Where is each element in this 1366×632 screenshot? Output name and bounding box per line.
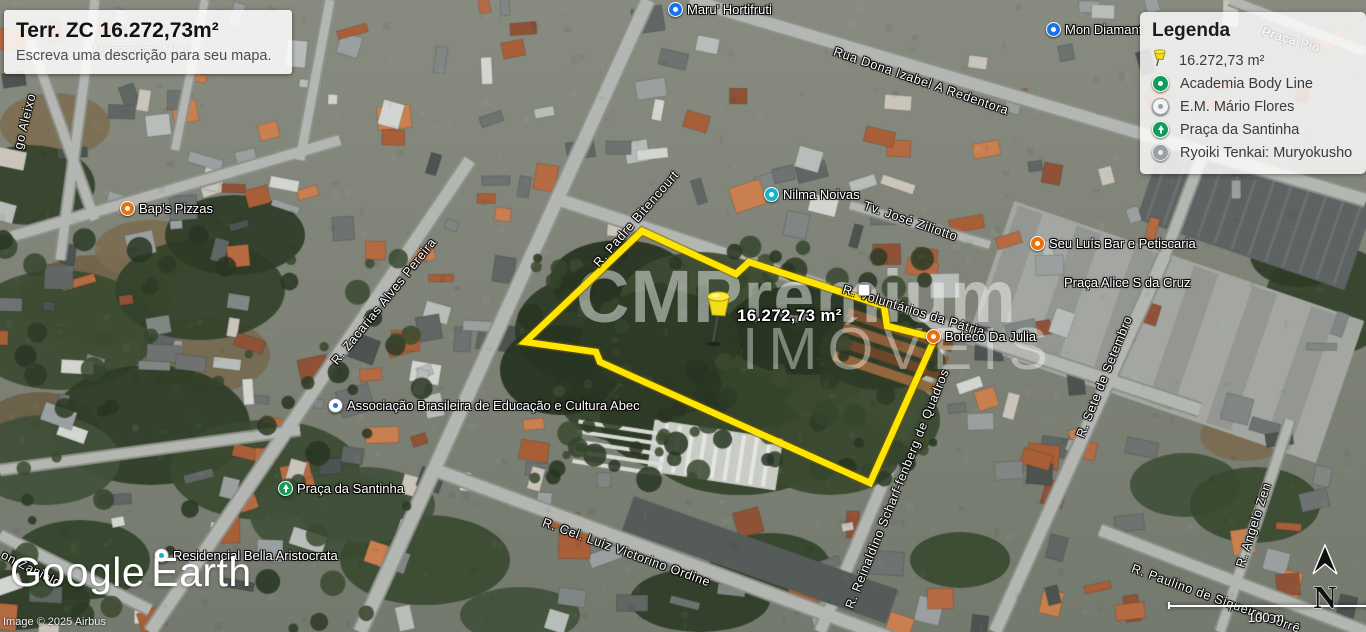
imagery-copyright: Image © 2025 Airbus — [3, 616, 106, 628]
pushpin-icon — [1152, 49, 1168, 72]
poi-green-icon — [1152, 75, 1169, 92]
legend-item-label: Ryoiki Tenkai: Muryokusho — [1180, 145, 1352, 161]
legend-items: 16.272,73 m²Academia Body LineE.M. Mário… — [1152, 49, 1356, 164]
google-earth-logo: GoogleEarth — [10, 549, 252, 596]
legend-panel: Legenda 16.272,73 m²Academia Body LineE.… — [1140, 12, 1366, 174]
map-title-box[interactable]: Terr. ZC 16.272,73m² Escreva uma descriç… — [4, 10, 292, 74]
legend-item[interactable]: 16.272,73 m² — [1152, 49, 1356, 72]
legend-item[interactable]: Academia Body Line — [1152, 72, 1356, 95]
legend-item-label: E.M. Mário Flores — [1180, 99, 1294, 115]
legend-item[interactable]: Ryoiki Tenkai: Muryokusho — [1152, 141, 1356, 164]
poi-gray-icon — [1152, 144, 1169, 161]
property-area-label: 16.272,73 m² — [737, 306, 842, 326]
legend-title: Legenda — [1152, 20, 1356, 42]
legend-item-label: Praça da Santinha — [1180, 122, 1299, 138]
legend-item[interactable]: Praça da Santinha — [1152, 118, 1356, 141]
map-description-placeholder[interactable]: Escreva uma descrição para seu mapa. — [16, 48, 280, 64]
scale-bar-label: 100 m — [1236, 610, 1296, 625]
compass-north-label: N — [1313, 579, 1336, 615]
legend-item[interactable]: E.M. Mário Flores — [1152, 95, 1356, 118]
google-earth-viewport: CMPremium IMÓVEIS Rua Dona Izabel A Rede… — [0, 0, 1366, 632]
google-logo-text: Google — [10, 549, 145, 595]
compass-north[interactable]: N — [1302, 542, 1348, 616]
poi-white-icon — [1152, 98, 1169, 115]
earth-logo-text: Earth — [151, 549, 252, 595]
legend-item-label: Academia Body Line — [1180, 76, 1313, 92]
poi-green-tree-icon — [1152, 121, 1169, 138]
legend-item-label: 16.272,73 m² — [1179, 53, 1264, 69]
compass-arrow-icon — [1313, 545, 1337, 574]
map-title[interactable]: Terr. ZC 16.272,73m² — [16, 19, 280, 43]
watermark-line2: IMÓVEIS — [742, 320, 1058, 379]
